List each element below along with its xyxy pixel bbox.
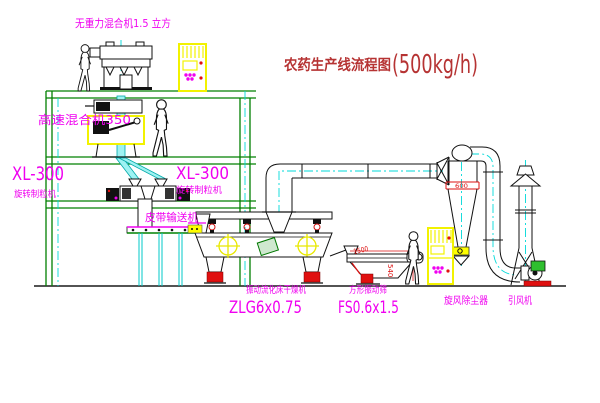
dryer-feet [204, 257, 323, 283]
label-sieve-name: 方形振动筛 [349, 284, 387, 296]
label-gravity-free-mixer: 无重力混合机1.5 立方 [75, 16, 171, 30]
label-granulator-right-model: XL-300 [176, 164, 229, 184]
high-speed-mixer [85, 100, 144, 157]
page-title-capacity: (500kg/h) [392, 50, 478, 80]
label-granulator-right-name: 旋转制粒机 [176, 184, 222, 196]
label-dryer-model: ZLG6x0.75 [229, 298, 302, 318]
label-granulator-left-name: 旋转制粒机 [14, 188, 56, 200]
label-fan: 引风机 [508, 294, 532, 307]
person-figure [153, 100, 168, 156]
page-title: 农药生产线流程图 [283, 56, 391, 74]
conveyor-legs [139, 233, 182, 286]
control-cabinet-2 [428, 228, 453, 284]
label-granulator-left-model: XL-300 [12, 163, 64, 185]
granulator-left [106, 179, 146, 201]
y-chute [116, 158, 166, 179]
belt-conveyor [127, 227, 197, 286]
fluid-bed-dryer [188, 212, 332, 283]
label-sieve-model: FS0.6x1.5 [338, 298, 399, 318]
gravity-free-mixer [90, 42, 152, 90]
person-figure [78, 45, 90, 91]
process-flow-diagram: 无重力混合机1.5 立方 农药生产线流程图 (500kg/h) 高速混合机350… [0, 0, 600, 403]
label-cyclone: 旋风除尘器 [444, 294, 488, 307]
label-dryer-name: 振动流化床干燥机 [246, 284, 306, 296]
label-belt-conveyor: 皮带输送机 [145, 210, 198, 224]
spring-mounts [208, 219, 321, 233]
control-cabinet-1 [179, 44, 206, 91]
dim-cyclone-600: 600 [455, 182, 468, 190]
label-high-speed-mixer: 高速混合机350 [38, 112, 131, 127]
dim-sieve-540: 540 [386, 264, 394, 277]
indicator-dot [199, 61, 202, 64]
exhaust-duct [262, 157, 449, 212]
diagram-canvas: 无重力混合机1.5 立方 农药生产线流程图 (500kg/h) 高速混合机350… [0, 0, 600, 403]
